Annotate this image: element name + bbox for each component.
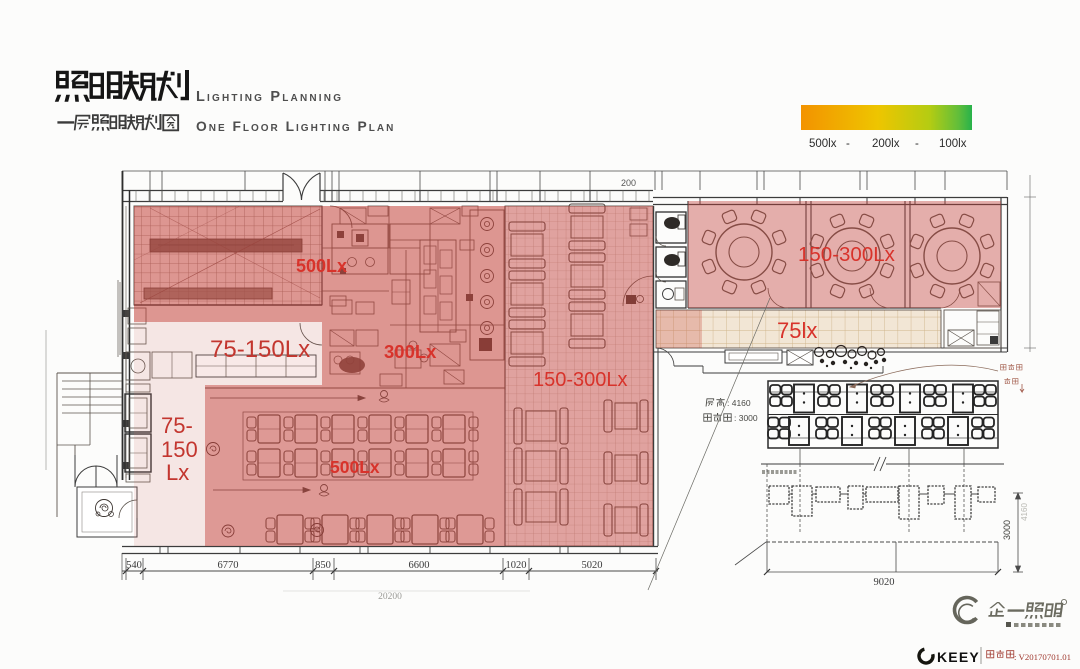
svg-text:100lx: 100lx [939, 138, 967, 150]
svg-text:: 4160: : 4160 [727, 398, 751, 408]
svg-text:Lighting Planning: Lighting Planning [196, 89, 343, 105]
svg-text:150-300Lx: 150-300Lx [533, 369, 628, 391]
svg-text:Lx: Lx [166, 460, 189, 485]
svg-text:150-300Lx: 150-300Lx [798, 243, 896, 266]
svg-text:3000: 3000 [1002, 520, 1012, 540]
svg-text:200lx: 200lx [872, 138, 900, 150]
svg-text:75-150Lx: 75-150Lx [210, 336, 310, 363]
svg-text:5020: 5020 [582, 560, 603, 571]
svg-text:75-: 75- [161, 413, 193, 438]
svg-text:: V20170701.01: : V20170701.01 [1014, 652, 1071, 662]
svg-text:6770: 6770 [218, 560, 239, 571]
svg-text:200: 200 [621, 178, 636, 188]
svg-text:540: 540 [126, 560, 142, 571]
svg-text:4160: 4160 [1020, 503, 1029, 521]
svg-text:150: 150 [161, 437, 198, 462]
svg-text:-: - [915, 138, 919, 150]
svg-text:850: 850 [315, 560, 331, 571]
svg-text:20200: 20200 [378, 592, 402, 602]
svg-text:75lx: 75lx [777, 318, 817, 343]
svg-text:9020: 9020 [874, 577, 895, 588]
svg-text:1020: 1020 [506, 560, 527, 571]
svg-text:One Floor Lighting Plan: One Floor Lighting Plan [196, 119, 395, 134]
svg-text:500Lx: 500Lx [330, 457, 380, 477]
svg-text:300Lx: 300Lx [384, 341, 437, 362]
svg-text:KEEY: KEEY [937, 649, 980, 665]
svg-text:500Lx: 500Lx [296, 256, 347, 276]
svg-text:6600: 6600 [409, 560, 430, 571]
svg-text:-: - [846, 138, 850, 150]
svg-text:500lx: 500lx [809, 138, 837, 150]
svg-text:: 3000: : 3000 [734, 413, 758, 423]
